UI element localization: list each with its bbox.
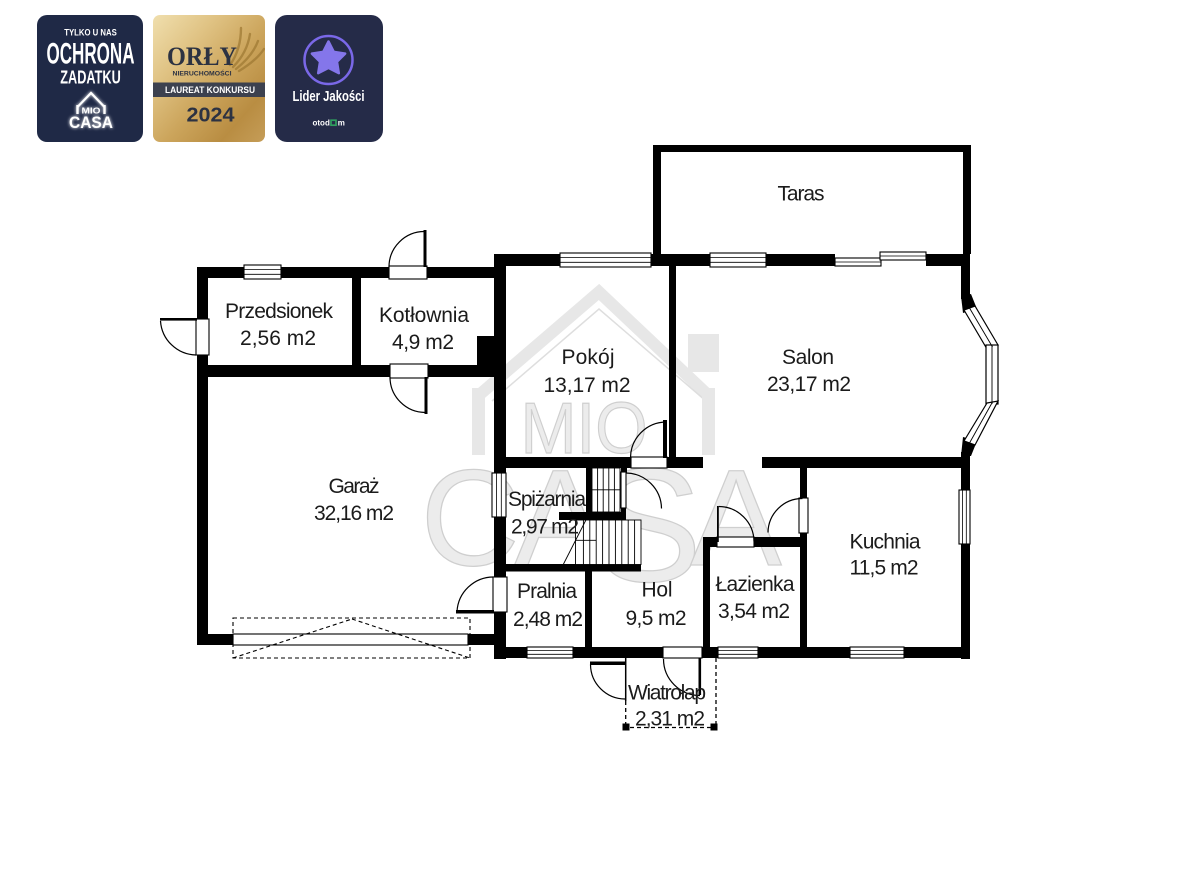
svg-text:CASA: CASA [69, 114, 113, 132]
svg-text:Łazienka: Łazienka [716, 573, 795, 596]
svg-text:Kotłownia: Kotłownia [379, 304, 469, 327]
svg-text:2024: 2024 [187, 104, 236, 127]
svg-text:m: m [338, 119, 345, 128]
svg-text:4,9 m2: 4,9 m2 [392, 331, 454, 354]
svg-text:32,16 m2: 32,16 m2 [314, 502, 394, 525]
svg-text:Wiatrołap: Wiatrołap [628, 682, 706, 705]
svg-text:Kuchnia: Kuchnia [850, 531, 921, 554]
svg-text:NIERUCHOMOŚCI: NIERUCHOMOŚCI [173, 69, 232, 78]
svg-text:LAUREAT KONKURSU: LAUREAT KONKURSU [165, 85, 255, 95]
svg-text:Salon: Salon [782, 346, 834, 369]
svg-text:13,17 m2: 13,17 m2 [544, 374, 631, 397]
svg-text:Lider Jakości: Lider Jakości [293, 88, 365, 105]
svg-text:ZADATKU: ZADATKU [60, 67, 121, 88]
svg-text:2,97 m2: 2,97 m2 [511, 516, 579, 539]
svg-text:otod: otod [313, 119, 330, 128]
svg-text:Spiżarnia: Spiżarnia [508, 488, 586, 511]
svg-text:ORŁY: ORŁY [167, 42, 237, 71]
svg-text:2,48 m2: 2,48 m2 [513, 608, 583, 631]
svg-text:Przedsionek: Przedsionek [225, 300, 334, 323]
svg-text:Garaż: Garaż [329, 475, 380, 498]
svg-text:Pralnia: Pralnia [517, 580, 577, 603]
svg-text:3,54 m2: 3,54 m2 [718, 600, 790, 623]
svg-text:Hol: Hol [642, 579, 673, 602]
svg-text:Pokój: Pokój [562, 346, 615, 369]
svg-text:Taras: Taras [778, 183, 825, 206]
svg-text:9,5 m2: 9,5 m2 [626, 607, 687, 630]
svg-text:23,17 m2: 23,17 m2 [767, 373, 851, 396]
svg-text:2,56 m2: 2,56 m2 [240, 327, 316, 350]
svg-text:2,31 m2: 2,31 m2 [635, 708, 705, 731]
svg-text:11,5 m2: 11,5 m2 [850, 557, 919, 580]
